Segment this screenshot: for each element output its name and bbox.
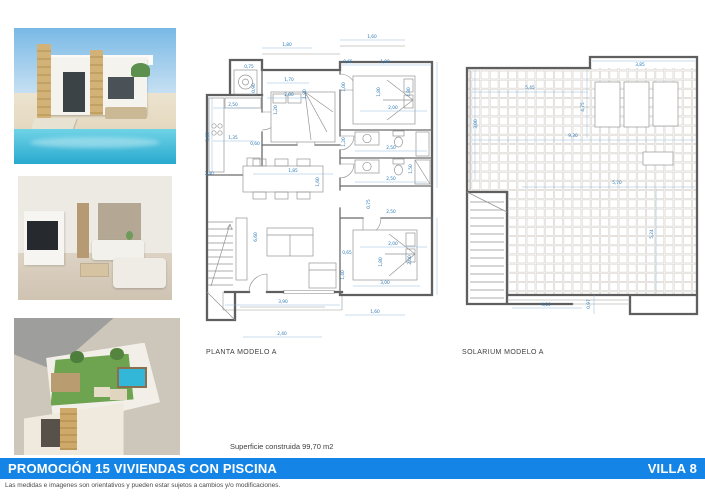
svg-text:4,10: 4,10	[541, 302, 551, 308]
svg-text:3,00: 3,00	[473, 119, 479, 129]
svg-text:1,00: 1,00	[380, 59, 390, 65]
svg-text:1,80: 1,80	[282, 42, 292, 48]
rooftop-solarium-photo	[14, 318, 180, 455]
svg-text:1,85: 1,85	[288, 168, 298, 174]
promo-title: PROMOCIÓN 15 VIVIENDAS CON PISCINA	[8, 461, 277, 476]
svg-text:4,75: 4,75	[580, 102, 586, 112]
svg-text:1,80: 1,80	[376, 87, 382, 97]
photo-window	[63, 72, 86, 113]
photo-stone-pillar	[60, 408, 77, 449]
svg-text:1,70: 1,70	[284, 77, 294, 83]
solarium-floorplan-svg: 3,855,453,004,759,305,705,244,100,97	[462, 52, 702, 337]
svg-text:0,75: 0,75	[366, 199, 372, 209]
svg-text:5,45: 5,45	[525, 85, 535, 91]
photo-tree	[110, 348, 123, 360]
svg-text:1,35: 1,35	[228, 135, 238, 141]
photo-coffee-table	[80, 263, 110, 277]
svg-text:0,65: 0,65	[342, 250, 352, 256]
svg-text:2,50: 2,50	[386, 209, 396, 215]
planta-floorplan-svg: 1,801,600,750,901,702,001,201,800,651,00…	[205, 32, 445, 347]
svg-text:1,00: 1,00	[341, 82, 347, 92]
svg-text:1,80: 1,80	[378, 257, 384, 267]
svg-text:5,70: 5,70	[612, 180, 622, 186]
photo-lounger	[110, 389, 127, 400]
svg-text:1,60: 1,60	[370, 309, 380, 315]
svg-text:2,00: 2,00	[407, 255, 413, 265]
svg-text:1,60: 1,60	[367, 34, 377, 40]
window-lines	[283, 291, 335, 294]
photo-window	[108, 77, 134, 99]
svg-text:1,20: 1,20	[341, 137, 347, 147]
photo-stone-pillar	[37, 44, 52, 119]
living-room-photo	[18, 176, 172, 300]
photo-outdoor-sofa	[105, 107, 147, 119]
solarium-plan-label: SOLARIUM MODELO A	[462, 349, 544, 356]
svg-text:3,85: 3,85	[635, 62, 645, 68]
svg-text:2,00: 2,00	[388, 241, 398, 247]
villa-exterior-photo	[14, 28, 176, 164]
built-area-note: Superficie construida 99,70 m2	[230, 442, 333, 451]
svg-text:2,00: 2,00	[284, 92, 294, 98]
photo-palm	[131, 63, 150, 77]
planta-plan-label: PLANTA MODELO A	[206, 349, 277, 356]
svg-text:1,60: 1,60	[315, 177, 321, 187]
svg-text:6,60: 6,60	[253, 232, 259, 242]
svg-text:1,40: 1,40	[340, 270, 346, 280]
svg-text:0,60: 0,60	[250, 141, 260, 147]
svg-text:9,30: 9,30	[568, 133, 578, 139]
brochure-page: 1,801,600,750,901,702,001,201,800,651,00…	[0, 0, 705, 497]
svg-text:1,20: 1,20	[273, 105, 279, 115]
photo-pool-glint	[30, 137, 160, 148]
svg-text:3,90: 3,90	[278, 299, 288, 305]
svg-text:0,65: 0,65	[343, 59, 353, 65]
svg-text:2,50: 2,50	[386, 145, 396, 151]
promo-banner: PROMOCIÓN 15 VIVIENDAS CON PISCINA VILLA…	[0, 458, 705, 479]
svg-text:2,40: 2,40	[277, 331, 287, 337]
photo-sun-lounger	[31, 118, 77, 129]
photo-tv	[27, 221, 58, 251]
photo-window	[41, 419, 61, 446]
svg-text:5,24: 5,24	[649, 229, 655, 239]
photo-outdoor-sofa	[51, 373, 81, 392]
svg-text:0,90: 0,90	[251, 83, 257, 93]
svg-text:0,40: 0,40	[205, 171, 214, 177]
svg-text:2,50: 2,50	[386, 176, 396, 182]
photo-jacuzzi	[117, 367, 148, 387]
svg-text:2,00: 2,00	[388, 105, 398, 111]
svg-text:1,50: 1,50	[408, 164, 414, 174]
photo-sofa	[113, 258, 165, 288]
svg-text:0,97: 0,97	[586, 299, 592, 309]
svg-text:1,80: 1,80	[302, 89, 308, 99]
svg-text:3,00: 3,00	[380, 280, 390, 286]
villa-model-label: VILLA 8	[648, 461, 697, 476]
svg-text:0,75: 0,75	[244, 64, 254, 70]
photo-stone-pillar	[90, 50, 103, 115]
disclaimer-text: Las medidas e imagenes son orientativos …	[5, 482, 280, 489]
svg-text:3,65: 3,65	[205, 132, 211, 142]
photo-lounger	[94, 387, 111, 398]
svg-text:2,50: 2,50	[228, 102, 238, 108]
photo-tree	[70, 351, 83, 363]
svg-text:1,80: 1,80	[406, 87, 412, 97]
photo-door	[77, 203, 89, 258]
